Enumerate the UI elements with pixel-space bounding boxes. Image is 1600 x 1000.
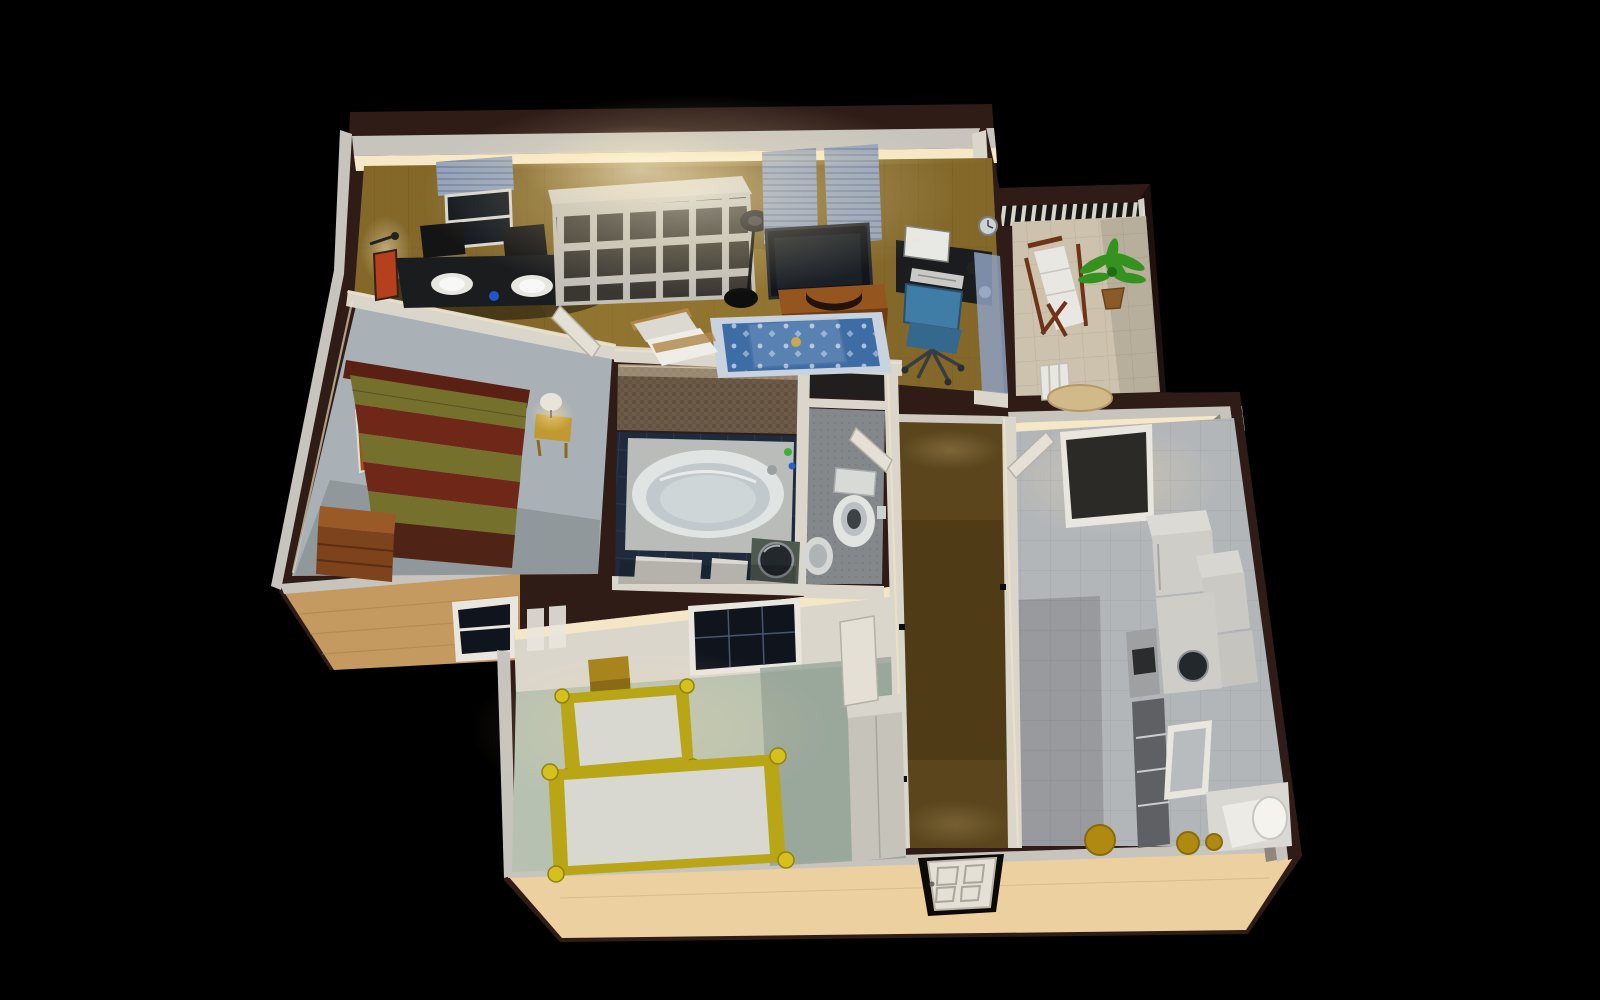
toilet [833, 468, 876, 547]
wardrobe [846, 694, 906, 862]
garden-table [1048, 385, 1112, 411]
shampoo-bottle [789, 463, 796, 470]
wall-picture-red [374, 250, 398, 300]
counter-sink [1156, 592, 1222, 694]
shelf-rack [1132, 698, 1170, 848]
stool [1177, 832, 1199, 854]
coffee-table [748, 318, 846, 368]
bottle [489, 291, 499, 301]
bathtub [625, 438, 796, 554]
front-door [928, 858, 996, 910]
kids-poster [527, 608, 544, 651]
render-viewport[interactable] [0, 0, 1600, 1000]
candle [791, 337, 801, 347]
kids-poster [549, 605, 566, 648]
toilet-paper-holder [877, 506, 886, 519]
kids-door [840, 616, 878, 706]
door-knob [930, 882, 935, 887]
room-hallway [896, 414, 1010, 848]
faucet [767, 465, 777, 475]
oven [1126, 628, 1160, 698]
kids-bed-lower [542, 748, 794, 882]
shampoo-bottle [784, 448, 792, 456]
entrance [918, 854, 1004, 916]
stool [1085, 825, 1115, 855]
chest-of-drawers [316, 506, 396, 582]
wall-clock [979, 217, 997, 235]
kitchen-doorway [1060, 424, 1154, 528]
kitchen-door [1164, 720, 1212, 800]
stool [1206, 834, 1222, 850]
apartment-3d-render [0, 0, 1600, 1000]
hand-basin [803, 537, 833, 575]
sink-basin [1178, 651, 1208, 681]
